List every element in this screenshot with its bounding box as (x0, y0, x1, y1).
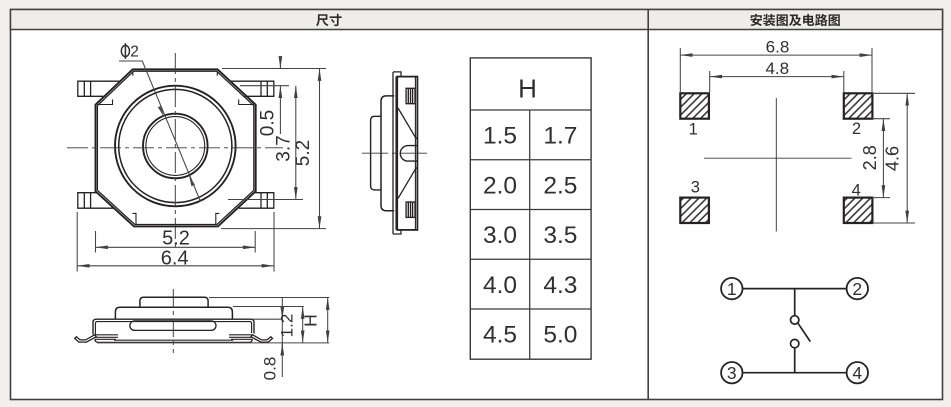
svg-text:4: 4 (852, 181, 861, 199)
svg-text:3.7: 3.7 (274, 135, 295, 161)
svg-text:4.8: 4.8 (765, 59, 789, 78)
svg-text:5.2: 5.2 (162, 228, 190, 250)
svg-text:4.5: 4.5 (483, 322, 517, 349)
svg-text:0.5: 0.5 (258, 110, 279, 136)
svg-text:1: 1 (727, 279, 737, 299)
svg-text:6.8: 6.8 (766, 38, 790, 57)
svg-text:5.2: 5.2 (293, 140, 314, 166)
svg-text:5.0: 5.0 (543, 322, 577, 349)
svg-text:1.7: 1.7 (543, 123, 577, 150)
svg-text:2.8: 2.8 (860, 145, 880, 170)
svg-text:3: 3 (727, 363, 737, 383)
svg-text:1: 1 (689, 121, 698, 139)
svg-text:3.5: 3.5 (543, 222, 577, 249)
svg-text:1.2: 1.2 (278, 314, 297, 338)
svg-text:2: 2 (852, 120, 861, 138)
svg-text:H: H (518, 73, 537, 103)
svg-text:2.5: 2.5 (543, 173, 577, 200)
svg-text:0.8: 0.8 (261, 357, 280, 381)
svg-text:2: 2 (130, 44, 139, 61)
svg-text:1.5: 1.5 (483, 123, 517, 150)
svg-text:2: 2 (852, 279, 862, 299)
svg-text:H: H (301, 314, 321, 327)
svg-text:4.6: 4.6 (883, 146, 903, 171)
svg-text:6.4: 6.4 (161, 247, 189, 269)
svg-text:2.0: 2.0 (483, 173, 517, 200)
svg-text:3.0: 3.0 (483, 222, 517, 249)
svg-text:4: 4 (852, 363, 862, 383)
svg-text:3: 3 (691, 178, 700, 196)
svg-text:4.0: 4.0 (483, 272, 517, 299)
svg-text:4.3: 4.3 (543, 272, 577, 299)
